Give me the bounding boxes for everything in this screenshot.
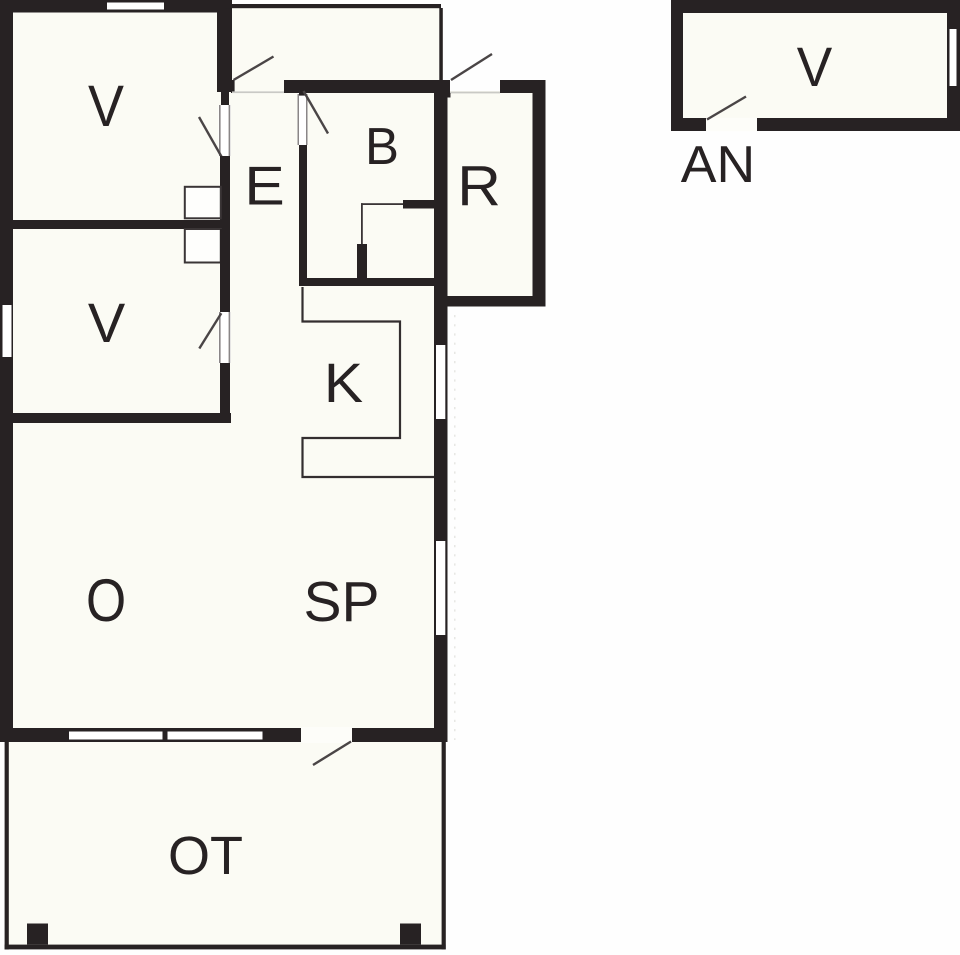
svg-text:B: B <box>365 117 399 176</box>
svg-text:E: E <box>244 156 284 217</box>
svg-text:K: K <box>324 352 363 414</box>
svg-text:R: R <box>457 155 501 218</box>
svg-text:V: V <box>88 291 126 354</box>
svg-text:V: V <box>797 36 833 99</box>
svg-text:OT: OT <box>168 826 243 886</box>
svg-text:SP: SP <box>303 570 379 634</box>
svg-text:O: O <box>86 566 126 634</box>
svg-text:AN: AN <box>681 136 755 194</box>
svg-text:V: V <box>88 73 125 138</box>
